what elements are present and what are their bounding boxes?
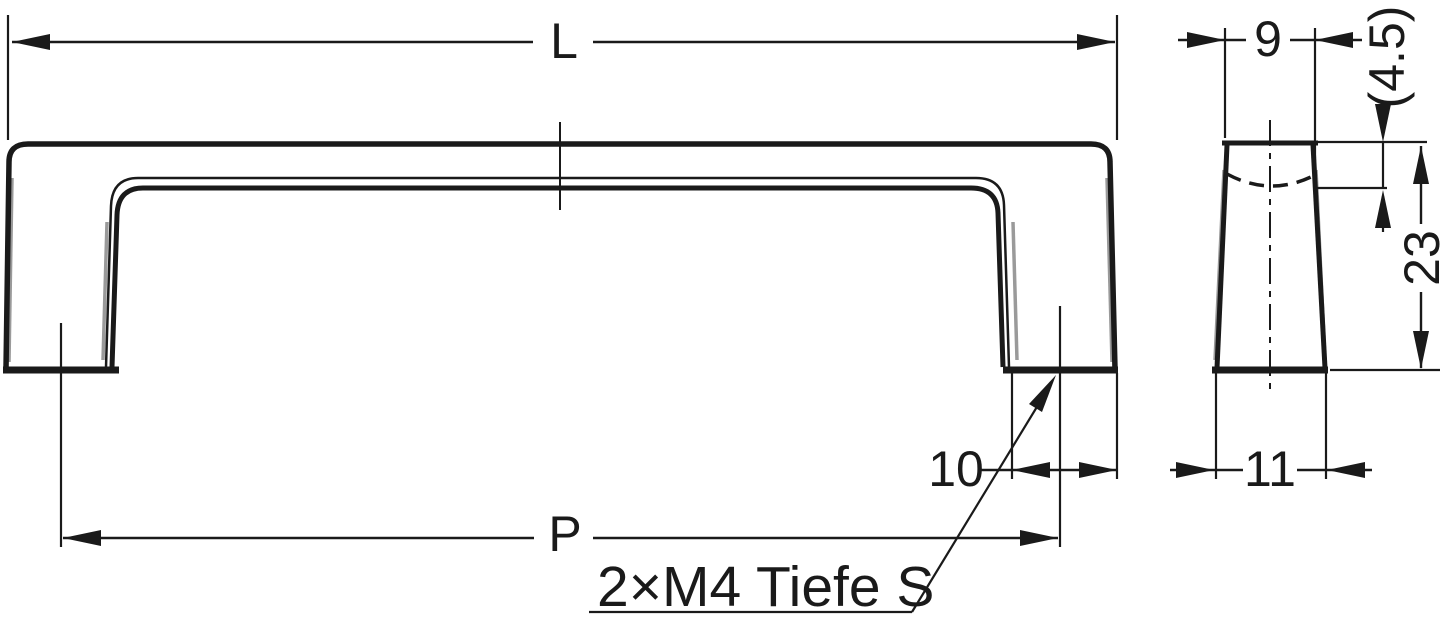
handle-front-view xyxy=(3,122,1118,370)
front-inner-profile xyxy=(112,188,1003,367)
arrowhead-right xyxy=(1020,530,1058,546)
dimension-label-9: 9 xyxy=(1254,11,1282,67)
dimension-foot-width: 10 xyxy=(928,373,1117,497)
arrowhead-left xyxy=(1012,462,1050,478)
dimension-label-4-5: (4.5) xyxy=(1359,6,1415,109)
thread-note-leader: 2×M4 Tiefe S xyxy=(589,375,1056,619)
front-inner-profile-highlight xyxy=(106,178,1009,367)
leader-arrowhead xyxy=(1029,375,1056,412)
dimension-label-L: L xyxy=(550,13,578,69)
thread-note-text: 2×M4 Tiefe S xyxy=(597,555,934,619)
arrowhead-left xyxy=(63,530,101,546)
dimension-label-P: P xyxy=(548,506,581,562)
front-right-foot-inner-shading xyxy=(1013,222,1017,360)
arrowhead-right xyxy=(1327,462,1365,478)
dimension-overall-length: L xyxy=(8,13,1117,140)
technical-drawing-page: L 10 P 2×M4 Tiefe S xyxy=(0,0,1445,624)
handle-dimension-drawing: L 10 P 2×M4 Tiefe S xyxy=(0,0,1445,624)
dimension-profile-height: 23 xyxy=(1330,146,1445,370)
dimension-hole-pitch: P xyxy=(61,306,1060,562)
dimension-label-23: 23 xyxy=(1394,230,1445,286)
handle-side-profile-view xyxy=(1212,120,1328,393)
arrowhead-down xyxy=(1375,104,1391,142)
arrowhead-left xyxy=(12,34,50,50)
arrowhead-right xyxy=(1077,34,1115,50)
arrowhead-down xyxy=(1413,331,1429,369)
dimension-label-11: 11 xyxy=(1244,441,1296,497)
dimension-label-10: 10 xyxy=(928,441,984,497)
arrowhead-up xyxy=(1375,190,1391,228)
dimension-profile-bottom-width: 11 xyxy=(1170,373,1372,497)
dimension-profile-top-width: 9 xyxy=(1178,11,1362,186)
arrowhead-up xyxy=(1413,146,1429,184)
arrowhead-left xyxy=(1176,462,1214,478)
arrowhead-right xyxy=(1315,32,1353,48)
arrowhead-left xyxy=(1187,32,1225,48)
arrowhead-right xyxy=(1079,462,1117,478)
